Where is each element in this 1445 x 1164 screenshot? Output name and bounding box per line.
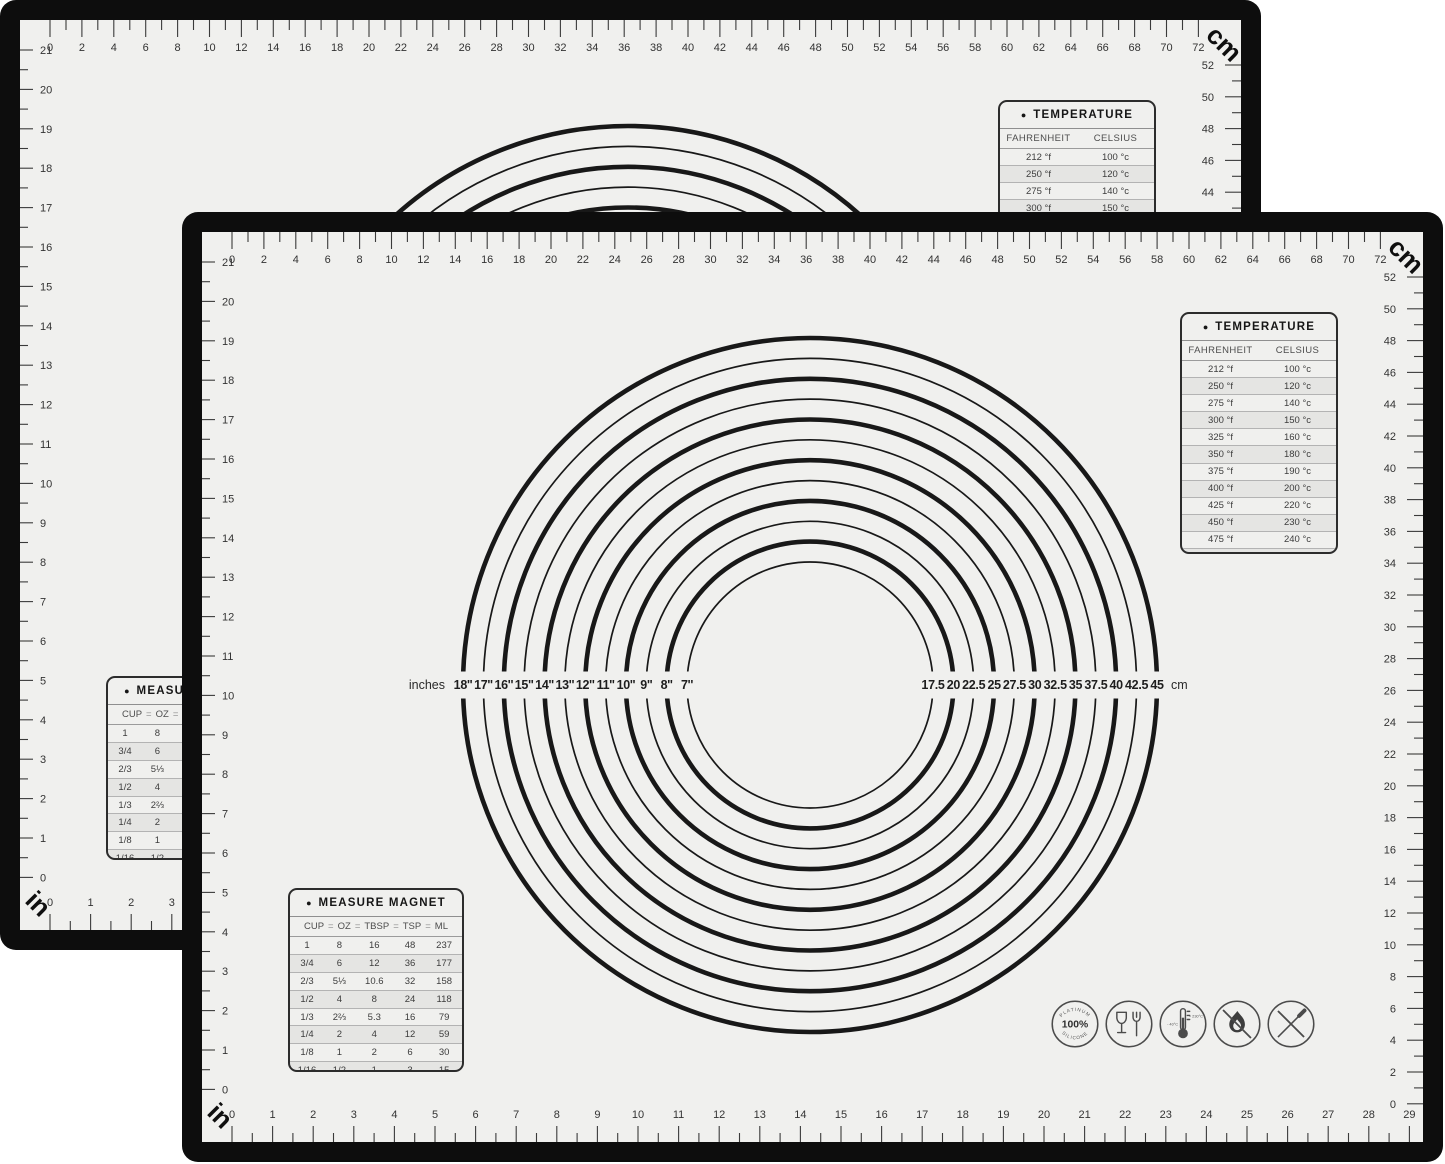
ruler-number: 28 <box>672 254 684 266</box>
ruler-number: 7 <box>513 1109 519 1121</box>
ruler-number: 34 <box>768 254 780 266</box>
ruler-number: 32 <box>1384 590 1396 602</box>
ring-inch-label: 16'' <box>494 678 513 692</box>
ruler-number: 7 <box>222 809 228 821</box>
measure-value: 1/16 <box>108 853 142 860</box>
equals-sign: = <box>355 921 361 932</box>
measure-value: 1/8 <box>108 835 142 846</box>
measure-value: 10.6 <box>355 976 394 987</box>
mat-surface: 0246810121416182022242628303234363840424… <box>202 232 1423 1142</box>
measure-value: 79 <box>426 1012 462 1023</box>
ruler-number: 14 <box>449 254 461 266</box>
celsius-value: 100 °c <box>1259 364 1336 375</box>
ruler-number: 32 <box>736 254 748 266</box>
measure-value: 1/2 <box>108 782 142 793</box>
equals-sign: = <box>146 709 152 720</box>
measure-row: 181648237 <box>290 937 462 955</box>
ring-cm-label: 32.5 <box>1044 678 1067 692</box>
ruler-number: 8 <box>357 254 363 266</box>
ruler-number: 28 <box>1363 1109 1375 1121</box>
ruler-number: 16 <box>481 254 493 266</box>
ruler-number: 32 <box>554 42 566 54</box>
pastry-mat-front: 0246810121416182022242628303234363840424… <box>182 212 1443 1162</box>
temperature-title-text: TEMPERATURE <box>1033 109 1133 121</box>
ruler-number: 6 <box>143 42 149 54</box>
ruler-number: 17 <box>222 415 234 427</box>
ruler-number: 15 <box>40 281 52 293</box>
glass-shape <box>1117 1012 1126 1023</box>
celsius-value: 140 °c <box>1259 398 1336 409</box>
measure-value: 1 <box>108 728 142 739</box>
ring-cm-label: 25 <box>987 678 1001 692</box>
ruler-number: 2 <box>79 42 85 54</box>
ruler-number: 11 <box>673 1109 684 1121</box>
ring-inch-label: 18'' <box>454 678 473 692</box>
ruler-number: 42 <box>896 254 908 266</box>
ruler-number: 25 <box>1241 1109 1253 1121</box>
ruler-number: 72 <box>1192 42 1204 54</box>
ruler-number: 24 <box>427 42 439 54</box>
measure-value: 15 <box>426 1065 462 1072</box>
knife-blade <box>1278 1015 1300 1037</box>
ruler-number: 30 <box>704 254 716 266</box>
measure-value: 4 <box>142 782 173 793</box>
ruler-number: 18 <box>331 42 343 54</box>
ruler-number: 21 <box>222 257 234 269</box>
measure-column-header: TSP <box>403 921 421 932</box>
food-safe-glass-fork-icon <box>1102 997 1156 1051</box>
ruler-number: 12 <box>417 254 429 266</box>
ruler-number: 44 <box>928 254 940 266</box>
measure-value: 1/3 <box>290 1012 324 1023</box>
ruler-number: 34 <box>586 42 598 54</box>
no-knife-icon <box>1264 997 1318 1051</box>
ruler-number: 12 <box>235 42 247 54</box>
ruler-number: 2 <box>261 254 267 266</box>
ruler-number: 24 <box>1200 1109 1212 1121</box>
celsius-value: 100 °c <box>1077 152 1154 163</box>
temperature-row: 375 °f 190 °c <box>1182 464 1336 481</box>
ruler-number: 6 <box>473 1109 479 1121</box>
measure-value: 16 <box>355 940 394 951</box>
ruler-number: 50 <box>841 42 853 54</box>
measure-value: 5⅓ <box>142 764 173 775</box>
ruler-number: 54 <box>1087 254 1099 266</box>
ruler-number: 0 <box>222 1084 228 1096</box>
measure-value: 2 <box>355 1047 394 1058</box>
measure-value: 3 <box>394 1065 426 1072</box>
temperature-row: 425 °f 220 °c <box>1182 498 1336 515</box>
ring-inch-label: 14'' <box>535 678 554 692</box>
ruler-number: 11 <box>222 651 233 663</box>
ruler-number: 44 <box>1202 187 1214 199</box>
ruler-number: 13 <box>754 1109 766 1121</box>
platinum-arc-text: PLATINUM <box>1058 1007 1091 1018</box>
ruler-number: 13 <box>40 360 52 372</box>
ruler-number: 14 <box>1384 876 1396 888</box>
ruler-number: 2 <box>310 1109 316 1121</box>
temperature-row: 250 °f 120 °c <box>1182 378 1336 395</box>
ring-inch-label: 8'' <box>661 678 673 692</box>
ruler-number: 7 <box>40 597 46 609</box>
measure-value: 1/3 <box>108 800 142 811</box>
ruler-number: 18 <box>1384 813 1396 825</box>
measure-column-header: TBSP <box>364 921 389 932</box>
ruler-number: 4 <box>1390 1035 1396 1047</box>
celsius-value: 180 °c <box>1259 449 1336 460</box>
ruler-number: 17 <box>40 203 52 215</box>
bullet-icon: ● <box>1021 111 1026 120</box>
measure-value: 59 <box>426 1029 462 1040</box>
ruler-number: 4 <box>293 254 299 266</box>
ring-cm-label: 20 <box>947 678 961 692</box>
ruler-number: 16 <box>40 242 52 254</box>
ruler-number: 17 <box>916 1109 928 1121</box>
ruler-number: 64 <box>1065 42 1077 54</box>
ring-cm-label: 22.5 <box>962 678 985 692</box>
measure-value: 8 <box>355 994 394 1005</box>
ruler-number: 20 <box>1384 781 1396 793</box>
measure-value: 8 <box>142 728 173 739</box>
ruler-number: 52 <box>1384 272 1396 284</box>
measure-column-header: CUP <box>122 709 142 720</box>
equals-sign: = <box>393 921 399 932</box>
hundred-percent-text: 100% <box>1062 1020 1088 1031</box>
measure-value: 36 <box>394 958 426 969</box>
temperature-row: 350 °f 180 °c <box>1182 446 1336 463</box>
ruler-number: 50 <box>1023 254 1035 266</box>
fahrenheit-value: 325 °f <box>1182 432 1259 443</box>
temp-min-text: - 40°C <box>1167 1021 1178 1026</box>
ruler-number: 30 <box>522 42 534 54</box>
celsius-value: 240 °c <box>1259 534 1336 545</box>
ruler-number: 0 <box>40 872 46 884</box>
silicone-arc-text: SILICONE <box>1061 1030 1089 1040</box>
temperature-columns: FAHRENHEIT CELSIUS <box>1000 129 1154 149</box>
measure-value: 6 <box>394 1047 426 1058</box>
fork-shape <box>1133 1012 1140 1035</box>
ring-cm-label: 37.5 <box>1084 678 1107 692</box>
ruler-number: 2 <box>1390 1067 1396 1079</box>
bullet-icon: ● <box>306 899 311 908</box>
measure-value: 5.3 <box>355 1012 394 1023</box>
left-ruler-in: 2120191817161514131211109876543210 <box>202 257 234 1096</box>
temperature-row: 212 °f 100 °c <box>1000 149 1154 166</box>
ring-cm-label: 17.5 <box>921 678 944 692</box>
ruler-number: 68 <box>1310 254 1322 266</box>
ruler-number: 14 <box>222 533 234 545</box>
measure-row: 1/32⅔5.31679 <box>290 1009 462 1027</box>
measure-row: 1/24824118 <box>290 991 462 1009</box>
fahrenheit-value: 425 °f <box>1182 500 1259 511</box>
temperature-row: 450 °f 230 °c <box>1182 515 1336 532</box>
measure-columns: CUP=OZ=TBSP=TSP=ML <box>290 917 462 937</box>
celsius-value: 260 °c <box>1259 552 1336 554</box>
celsius-value: 160 °c <box>1259 432 1336 443</box>
temperature-row: 275 °f 140 °c <box>1000 183 1154 200</box>
ring-cm-label: 27.5 <box>1003 678 1026 692</box>
ruler-number: 5 <box>222 887 228 899</box>
temperature-row: 500 °f 260 °c <box>1182 549 1336 554</box>
ruler-number: 3 <box>169 897 175 909</box>
ring-inch-label: 9'' <box>640 678 652 692</box>
ruler-number: 64 <box>1247 254 1259 266</box>
fahrenheit-value: 212 °f <box>1182 364 1259 375</box>
ruler-number: 62 <box>1033 42 1045 54</box>
fahrenheit-value: 212 °f <box>1000 152 1077 163</box>
ruler-number: 20 <box>222 296 234 308</box>
bullet-icon: ● <box>124 687 129 696</box>
measure-value: 8 <box>324 940 355 951</box>
temperature-title-text: TEMPERATURE <box>1215 321 1315 333</box>
ruler-number: 9 <box>40 518 46 530</box>
measure-row: 1/161/21315 <box>290 1062 462 1072</box>
ruler-number: 72 <box>1374 254 1386 266</box>
fahrenheit-value: 400 °f <box>1182 483 1259 494</box>
ruler-number: 68 <box>1128 42 1140 54</box>
equals-sign: = <box>328 921 334 932</box>
measure-value: 30 <box>426 1047 462 1058</box>
temperature-columns: FAHRENHEIT CELSIUS <box>1182 341 1336 361</box>
measure-value: 4 <box>324 994 355 1005</box>
ruler-number: 36 <box>618 42 630 54</box>
ruler-number: 6 <box>222 848 228 860</box>
ruler-number: 15 <box>835 1109 847 1121</box>
measure-magnet-table: ● MEASURE MAGNET CUP=OZ=TBSP=TSP=ML18164… <box>288 888 464 1072</box>
ruler-number: 50 <box>1384 304 1396 316</box>
measure-table-title: ● MEASURE MAGNET <box>290 890 462 917</box>
ruler-number: 52 <box>1055 254 1067 266</box>
temperature-row: 212 °f 100 °c <box>1182 361 1336 378</box>
celsius-value: 150 °c <box>1259 415 1336 426</box>
ruler-number: 42 <box>714 42 726 54</box>
ruler-number: 4 <box>111 42 117 54</box>
fahrenheit-value: 250 °f <box>1182 381 1259 392</box>
certification-icons: PLATINUM 100% SILICONE - 40°C + 230°C <box>1048 997 1318 1051</box>
ruler-number: 2 <box>222 1006 228 1018</box>
ruler-number: 19 <box>222 336 234 348</box>
temperature-range-icon: - 40°C + 230°C <box>1156 997 1210 1051</box>
ruler-number: 52 <box>1202 60 1214 72</box>
ruler-number: 18 <box>513 254 525 266</box>
flame-resistant-icon <box>1210 997 1264 1051</box>
temperature-row: 275 °f 140 °c <box>1182 395 1336 412</box>
top-ruler-cm: 0246810121416182022242628303234363840424… <box>47 20 1248 68</box>
ruler-number: 14 <box>40 321 52 333</box>
ruler-number: 40 <box>864 254 876 266</box>
ruler-number: 27 <box>1322 1109 1334 1121</box>
ruler-number: 22 <box>1119 1109 1131 1121</box>
ruler-number: 10 <box>385 254 397 266</box>
ruler-number: 6 <box>325 254 331 266</box>
ruler-number: 16 <box>1384 844 1396 856</box>
temperature-table: ● TEMPERATURE FAHRENHEIT CELSIUS 212 °f … <box>1180 312 1338 554</box>
svg-text:PLATINUM: PLATINUM <box>1058 1007 1091 1018</box>
celsius-value: 120 °c <box>1259 381 1336 392</box>
ruler-number: 9 <box>222 730 228 742</box>
product-image: 0246810121416182022242628303234363840424… <box>0 0 1445 1164</box>
ruler-number: 5 <box>40 675 46 687</box>
measure-value: 158 <box>426 976 462 987</box>
ruler-number: 70 <box>1342 254 1354 266</box>
celsius-header: CELSIUS <box>1077 133 1154 144</box>
ruler-number: 4 <box>222 927 228 939</box>
equals-sign: = <box>173 709 179 720</box>
ring-inch-label: 12'' <box>576 678 595 692</box>
ruler-number: 23 <box>1160 1109 1172 1121</box>
ruler-number: 10 <box>1384 940 1396 952</box>
ruler-number: 42 <box>1384 431 1396 443</box>
ruler-number: 16 <box>299 42 311 54</box>
ruler-number: 22 <box>577 254 589 266</box>
ruler-number: 28 <box>490 42 502 54</box>
ring-inch-label: 13'' <box>555 678 574 692</box>
ruler-number: 10 <box>632 1109 644 1121</box>
ruler-number: 12 <box>40 400 52 412</box>
ruler-number: 16 <box>875 1109 887 1121</box>
ruler-number: 40 <box>1384 463 1396 475</box>
ruler-number: 30 <box>1384 622 1396 634</box>
measure-value: 48 <box>394 940 426 951</box>
ruler-number: 48 <box>809 42 821 54</box>
in-unit-label: in <box>20 885 58 923</box>
measure-column-header: ML <box>435 921 448 932</box>
celsius-value: 200 °c <box>1259 483 1336 494</box>
ruler-number: 56 <box>1119 254 1131 266</box>
ring-inch-label: 17'' <box>474 678 493 692</box>
ruler-number: 22 <box>395 42 407 54</box>
ruler-number: 10 <box>203 42 215 54</box>
ruler-number: 48 <box>1384 336 1396 348</box>
measure-column-header: OZ <box>156 709 169 720</box>
measure-value: 1/4 <box>108 817 142 828</box>
svg-text:SILICONE: SILICONE <box>1061 1030 1089 1040</box>
temperature-row: 300 °f 150 °c <box>1182 412 1336 429</box>
measure-row: 2/35⅓10.632158 <box>290 973 462 991</box>
ruler-number: 13 <box>222 572 234 584</box>
ring-inch-label: 10'' <box>617 678 636 692</box>
ruler-number: 66 <box>1279 254 1291 266</box>
ruler-number: 10 <box>222 690 234 702</box>
ruler-number: 50 <box>1202 92 1214 104</box>
ruler-number: 19 <box>997 1109 1009 1121</box>
ruler-number: 10 <box>40 478 52 490</box>
ruler-number: 48 <box>1202 124 1214 136</box>
ruler-number: 12 <box>222 612 234 624</box>
fahrenheit-value: 500 °f <box>1182 552 1259 554</box>
fahrenheit-header: FAHRENHEIT <box>1182 345 1259 356</box>
in-unit-label: in <box>202 1097 240 1135</box>
ruler-number: 56 <box>937 42 949 54</box>
measure-value: 1 <box>324 1047 355 1058</box>
ruler-number: 60 <box>1001 42 1013 54</box>
ruler-number: 22 <box>1384 749 1396 761</box>
ruler-number: 24 <box>1384 717 1396 729</box>
fahrenheit-value: 300 °f <box>1182 415 1259 426</box>
measure-value: 1 <box>142 835 173 846</box>
measure-value: 12 <box>355 958 394 969</box>
ruler-number: 6 <box>40 636 46 648</box>
ruler-number: 60 <box>1183 254 1195 266</box>
temp-max-text: + 230°C <box>1189 1013 1203 1018</box>
inches-caption: inches <box>409 678 445 692</box>
ring-cm-label: 40 <box>1110 678 1124 692</box>
ruler-number: 20 <box>545 254 557 266</box>
ruler-number: 1 <box>270 1109 276 1121</box>
measure-value: 2⅔ <box>142 800 173 811</box>
ring-cm-label: 35 <box>1069 678 1083 692</box>
ruler-number: 54 <box>905 42 917 54</box>
measure-value: 1 <box>355 1065 394 1072</box>
ruler-number: 1 <box>40 833 46 845</box>
ruler-number: 15 <box>222 493 234 505</box>
celsius-header: CELSIUS <box>1259 345 1336 356</box>
ruler-number: 58 <box>969 42 981 54</box>
ruler-number: 0 <box>1390 1099 1396 1111</box>
measure-row: 1/812630 <box>290 1044 462 1062</box>
measure-title-text: MEASURE MAGNET <box>319 897 446 909</box>
ruler-number: 6 <box>1390 1003 1396 1015</box>
ruler-number: 29 <box>1403 1109 1415 1121</box>
celsius-value: 230 °c <box>1259 517 1336 528</box>
temperature-row: 250 °f 120 °c <box>1000 166 1154 183</box>
ruler-number: 11 <box>40 439 51 451</box>
measure-row: 3/461236177 <box>290 955 462 973</box>
fahrenheit-value: 475 °f <box>1182 534 1259 545</box>
ruler-number: 38 <box>650 42 662 54</box>
fahrenheit-header: FAHRENHEIT <box>1000 133 1077 144</box>
equals-sign: = <box>425 921 431 932</box>
measure-value: 3/4 <box>108 746 142 757</box>
measure-column-header: CUP <box>304 921 324 932</box>
measure-value: 24 <box>394 994 426 1005</box>
ruler-number: 18 <box>40 163 52 175</box>
ruler-number: 20 <box>40 84 52 96</box>
ring-cm-label: 42.5 <box>1125 678 1148 692</box>
measure-value: 1/2 <box>142 853 173 860</box>
left-ruler-in: 2120191817161514131211109876543210 <box>20 45 52 884</box>
ruler-number: 21 <box>1078 1109 1090 1121</box>
ruler-number: 2 <box>128 897 134 909</box>
celsius-value: 140 °c <box>1077 186 1154 197</box>
ruler-number: 24 <box>609 254 621 266</box>
temperature-table-title: ● TEMPERATURE <box>1182 314 1336 341</box>
ruler-number: 19 <box>40 124 52 136</box>
measure-value: 1 <box>290 940 324 951</box>
ruler-number: 62 <box>1215 254 1227 266</box>
celsius-value: 120 °c <box>1077 169 1154 180</box>
ruler-number: 20 <box>363 42 375 54</box>
temperature-row: 475 °f 240 °c <box>1182 532 1336 549</box>
ruler-number: 16 <box>222 454 234 466</box>
ruler-number: 48 <box>991 254 1003 266</box>
ruler-number: 4 <box>391 1109 397 1121</box>
measure-value: 1/16 <box>290 1065 324 1072</box>
ruler-number: 5 <box>432 1109 438 1121</box>
ruler-number: 46 <box>960 254 972 266</box>
ruler-number: 58 <box>1151 254 1163 266</box>
measure-value: 32 <box>394 976 426 987</box>
measure-row: 1/4241259 <box>290 1026 462 1044</box>
measure-value: 2/3 <box>290 976 324 987</box>
ruler-number: 34 <box>1384 558 1396 570</box>
ring-inch-label: 11'' <box>597 678 615 692</box>
ring-inch-label: 15'' <box>515 678 534 692</box>
ruler-number: 8 <box>40 557 46 569</box>
ruler-number: 14 <box>267 42 279 54</box>
measure-value: 4 <box>355 1029 394 1040</box>
circle-size-guide: inches18''17''16''15''14''13''12''11''10… <box>400 338 1206 1032</box>
